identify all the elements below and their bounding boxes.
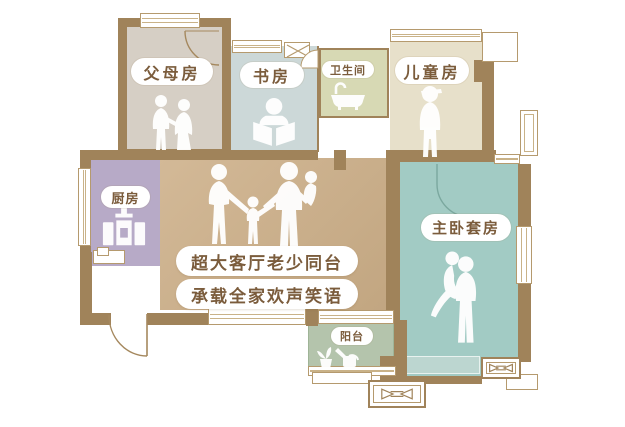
wall-segment bbox=[482, 78, 494, 162]
dancing-couple-icon bbox=[427, 250, 491, 348]
room-label-text: 父母房 bbox=[143, 60, 200, 84]
room-label-parents: 父母房 bbox=[131, 58, 213, 85]
flue-ledge bbox=[520, 110, 538, 156]
floor-plan: 父母房 书房 卫生间 儿童房 主卧套房 厨房 阳台 超大客厅老少同台 承载全家欢… bbox=[0, 0, 625, 427]
room-label-text: 卫生间 bbox=[330, 62, 366, 78]
ledge bbox=[312, 372, 372, 384]
wall-segment bbox=[386, 162, 400, 324]
caption-line-2: 承载全家欢声笑语 bbox=[176, 279, 358, 309]
family-icon bbox=[197, 160, 335, 248]
room-label-text: 主卧套房 bbox=[432, 217, 500, 238]
reading-person-icon bbox=[251, 97, 297, 149]
caption-text: 承载全家欢声笑语 bbox=[191, 282, 343, 307]
wall-segment bbox=[334, 150, 346, 170]
balcony-door-window bbox=[318, 310, 394, 324]
room-label-text: 厨房 bbox=[111, 188, 139, 207]
window bbox=[208, 308, 306, 325]
bathtub-icon bbox=[330, 82, 366, 110]
plant-watering-can-icon bbox=[316, 344, 362, 372]
room-label-text: 阳台 bbox=[340, 328, 364, 344]
room-label-children: 儿童房 bbox=[395, 57, 469, 84]
room-label-text: 书房 bbox=[253, 63, 291, 87]
child-icon bbox=[409, 84, 451, 160]
ac-bowtie-icon bbox=[487, 362, 515, 374]
window bbox=[390, 29, 482, 42]
caption-line-1: 超大客厅老少同台 bbox=[176, 246, 358, 276]
parents-couple-icon bbox=[146, 93, 202, 153]
window bbox=[494, 154, 520, 164]
wall-segment bbox=[80, 150, 91, 168]
kitchen-stove-icon bbox=[101, 206, 147, 252]
wall-segment bbox=[80, 313, 111, 325]
window bbox=[78, 168, 91, 246]
ac-bowtie-icon bbox=[377, 386, 417, 402]
room-label-bathroom: 卫生间 bbox=[322, 61, 374, 78]
window bbox=[516, 226, 532, 284]
ac-platform bbox=[368, 380, 426, 408]
master-window-band bbox=[404, 356, 480, 374]
room-label-text: 儿童房 bbox=[403, 59, 460, 83]
bay-ledge bbox=[482, 32, 518, 62]
wall-segment bbox=[306, 308, 318, 326]
kitchen-sink-counter bbox=[93, 250, 125, 264]
ac-platform bbox=[481, 357, 521, 379]
room-label-balcony: 阳台 bbox=[331, 327, 373, 345]
room-label-master: 主卧套房 bbox=[421, 214, 511, 241]
window bbox=[232, 40, 282, 53]
room-label-study: 书房 bbox=[240, 62, 304, 88]
wall-segment bbox=[474, 60, 494, 82]
duct-box bbox=[284, 42, 310, 58]
window bbox=[140, 13, 200, 28]
wall-segment bbox=[147, 313, 210, 325]
room-label-kitchen: 厨房 bbox=[101, 186, 150, 208]
caption-text: 超大客厅老少同台 bbox=[191, 249, 343, 274]
